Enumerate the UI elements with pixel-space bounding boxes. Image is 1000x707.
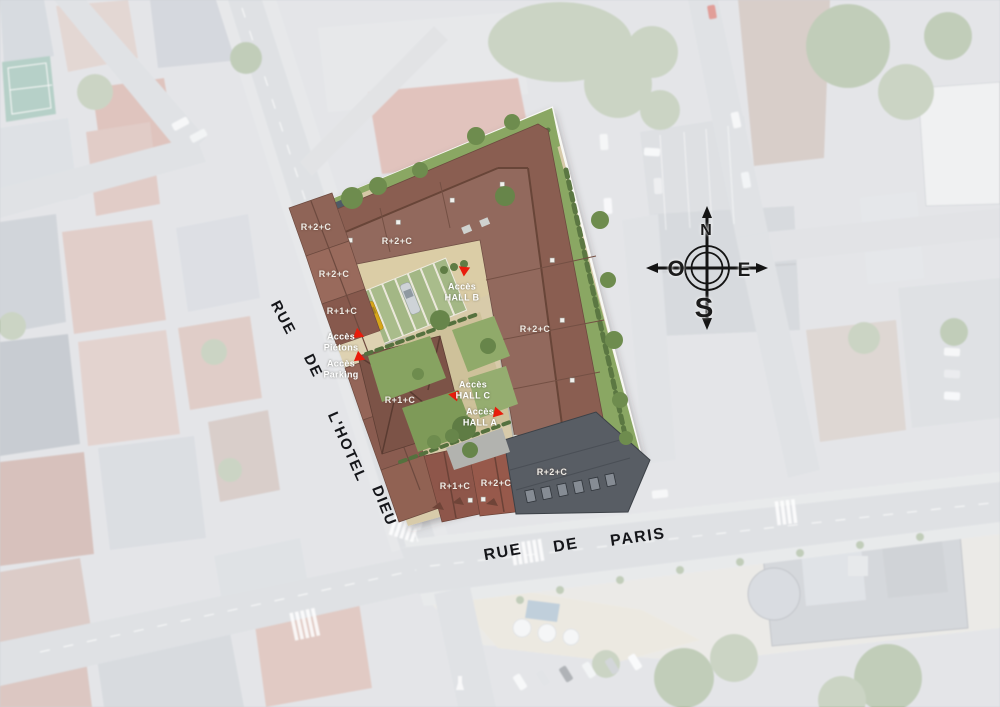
map-canvas bbox=[0, 0, 1000, 707]
aerial-site-plan-map: R+2+C R+2+C R+2+C R+1+C R+2+C R+1+C R+1+… bbox=[0, 0, 1000, 707]
